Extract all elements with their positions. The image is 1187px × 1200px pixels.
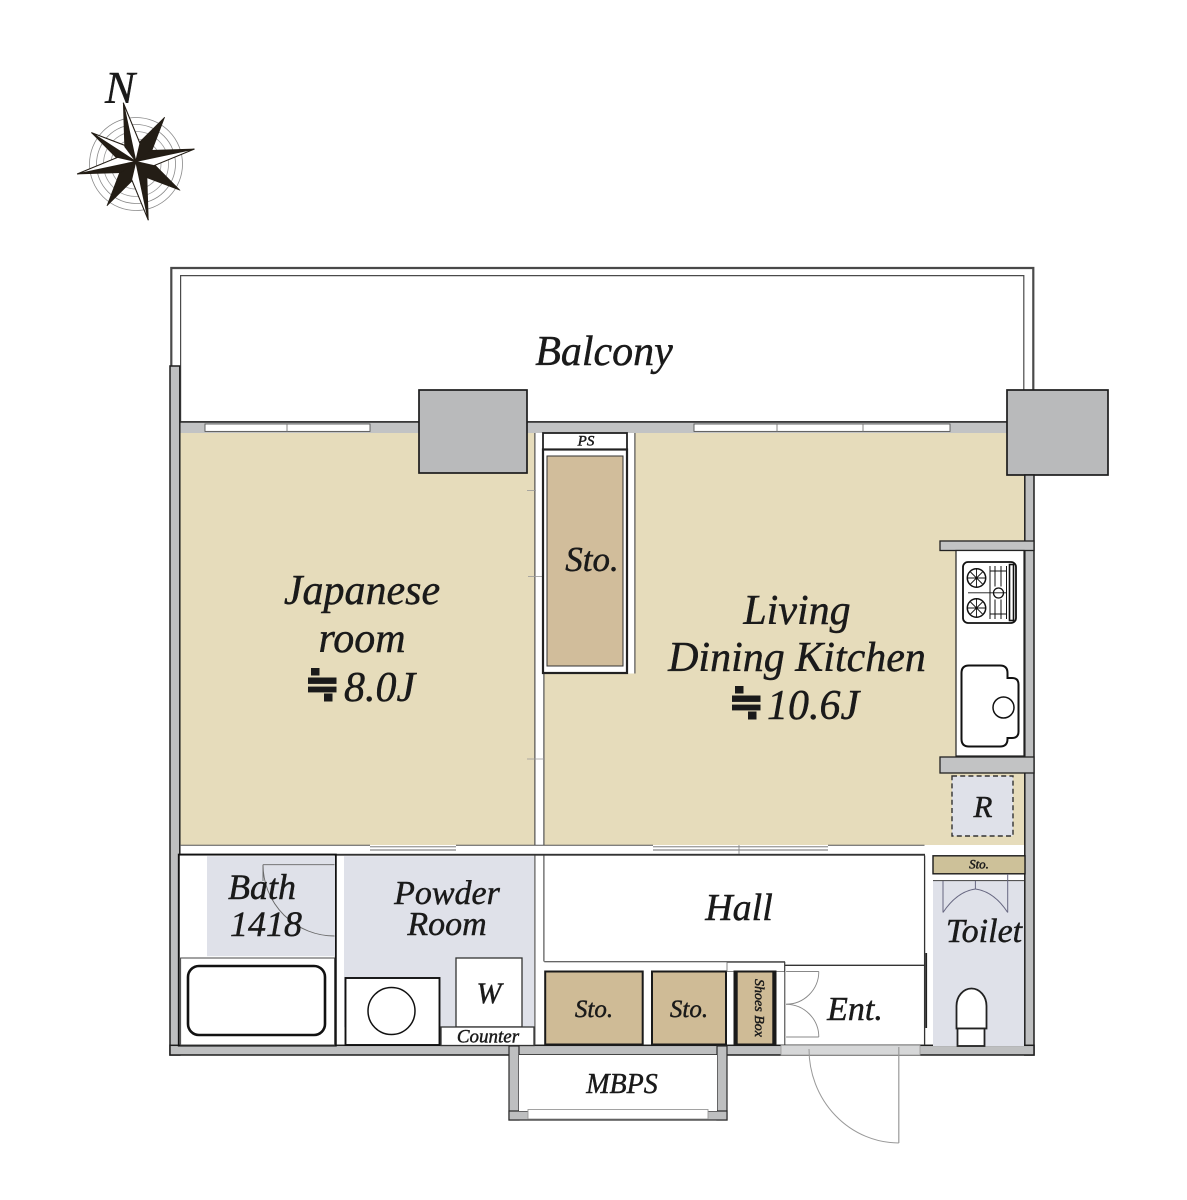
svg-text:Dining Kitchen: Dining Kitchen <box>667 635 926 681</box>
svg-text:Counter: Counter <box>457 1027 520 1048</box>
svg-text:W: W <box>477 977 505 1010</box>
svg-text:8.0J: 8.0J <box>344 665 418 711</box>
svg-text:room: room <box>318 616 405 662</box>
svg-text:Living: Living <box>742 588 850 634</box>
svg-text:Hall: Hall <box>704 887 773 929</box>
svg-text:Bath: Bath <box>228 867 296 907</box>
svg-text:Sto.: Sto. <box>670 996 708 1023</box>
svg-text:Room: Room <box>406 906 486 943</box>
svg-text:R: R <box>973 789 993 824</box>
svg-text:Ent.: Ent. <box>826 991 883 1028</box>
svg-text:Toilet: Toilet <box>946 913 1024 950</box>
svg-text:Sto.: Sto. <box>969 857 989 872</box>
svg-text:10.6J: 10.6J <box>767 683 862 729</box>
svg-text:Sto.: Sto. <box>565 540 618 579</box>
svg-text:Balcony: Balcony <box>535 329 673 375</box>
svg-text:Japanese: Japanese <box>284 568 440 614</box>
svg-text:PS: PS <box>577 434 595 450</box>
svg-text:Sto.: Sto. <box>575 996 613 1023</box>
svg-text:N: N <box>104 63 138 113</box>
svg-text:MBPS: MBPS <box>585 1069 658 1100</box>
svg-text:1418: 1418 <box>230 904 302 944</box>
svg-text:Shoes Box: Shoes Box <box>751 979 766 1038</box>
